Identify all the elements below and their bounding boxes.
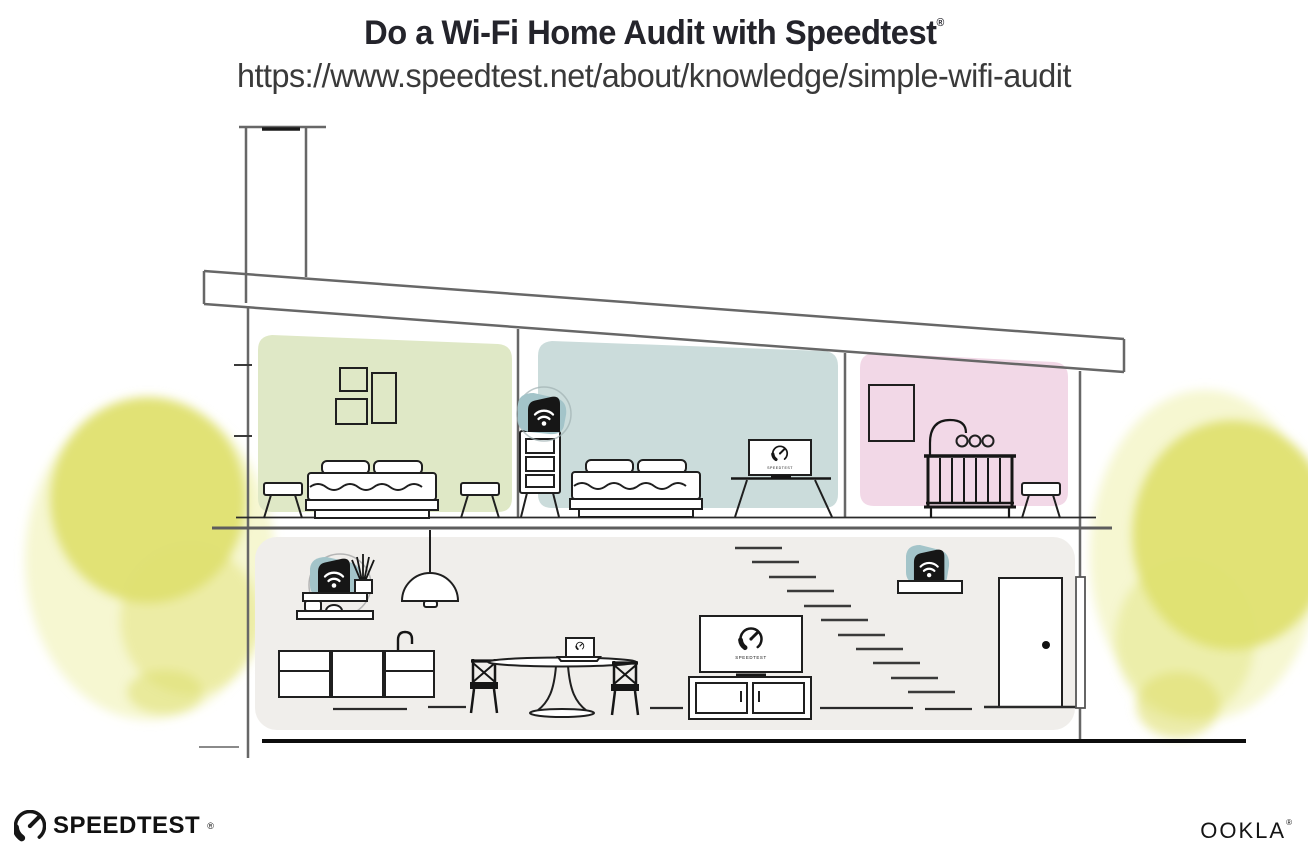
doorknob-icon xyxy=(1042,641,1050,649)
wifi-mesh-device-icon xyxy=(528,397,560,432)
speedtest-gauge-icon xyxy=(14,810,46,842)
tv-screen-label: SPEEDTEST xyxy=(767,466,793,470)
right-tree xyxy=(1090,390,1308,738)
ookla-logo-text: OOKLA xyxy=(1200,818,1286,844)
wifi-mesh-device-icon xyxy=(318,559,350,594)
media-console xyxy=(689,677,811,719)
speedtest-logo: SPEEDTEST® xyxy=(14,810,214,842)
ookla-logo: OOKLA® xyxy=(1200,818,1292,844)
wifi-mesh-device-icon xyxy=(914,550,944,584)
registered-mark: ® xyxy=(1286,818,1292,827)
registered-mark: ® xyxy=(207,821,214,831)
speedtest-logo-text: SPEEDTEST xyxy=(53,812,200,840)
room-lower-floor xyxy=(255,537,1075,730)
door-frame-strip xyxy=(1076,577,1085,708)
house-illustration: SPEEDTEST xyxy=(0,0,1308,861)
left-tree xyxy=(25,397,275,720)
tv-screen-label: SPEEDTEST xyxy=(735,655,767,660)
